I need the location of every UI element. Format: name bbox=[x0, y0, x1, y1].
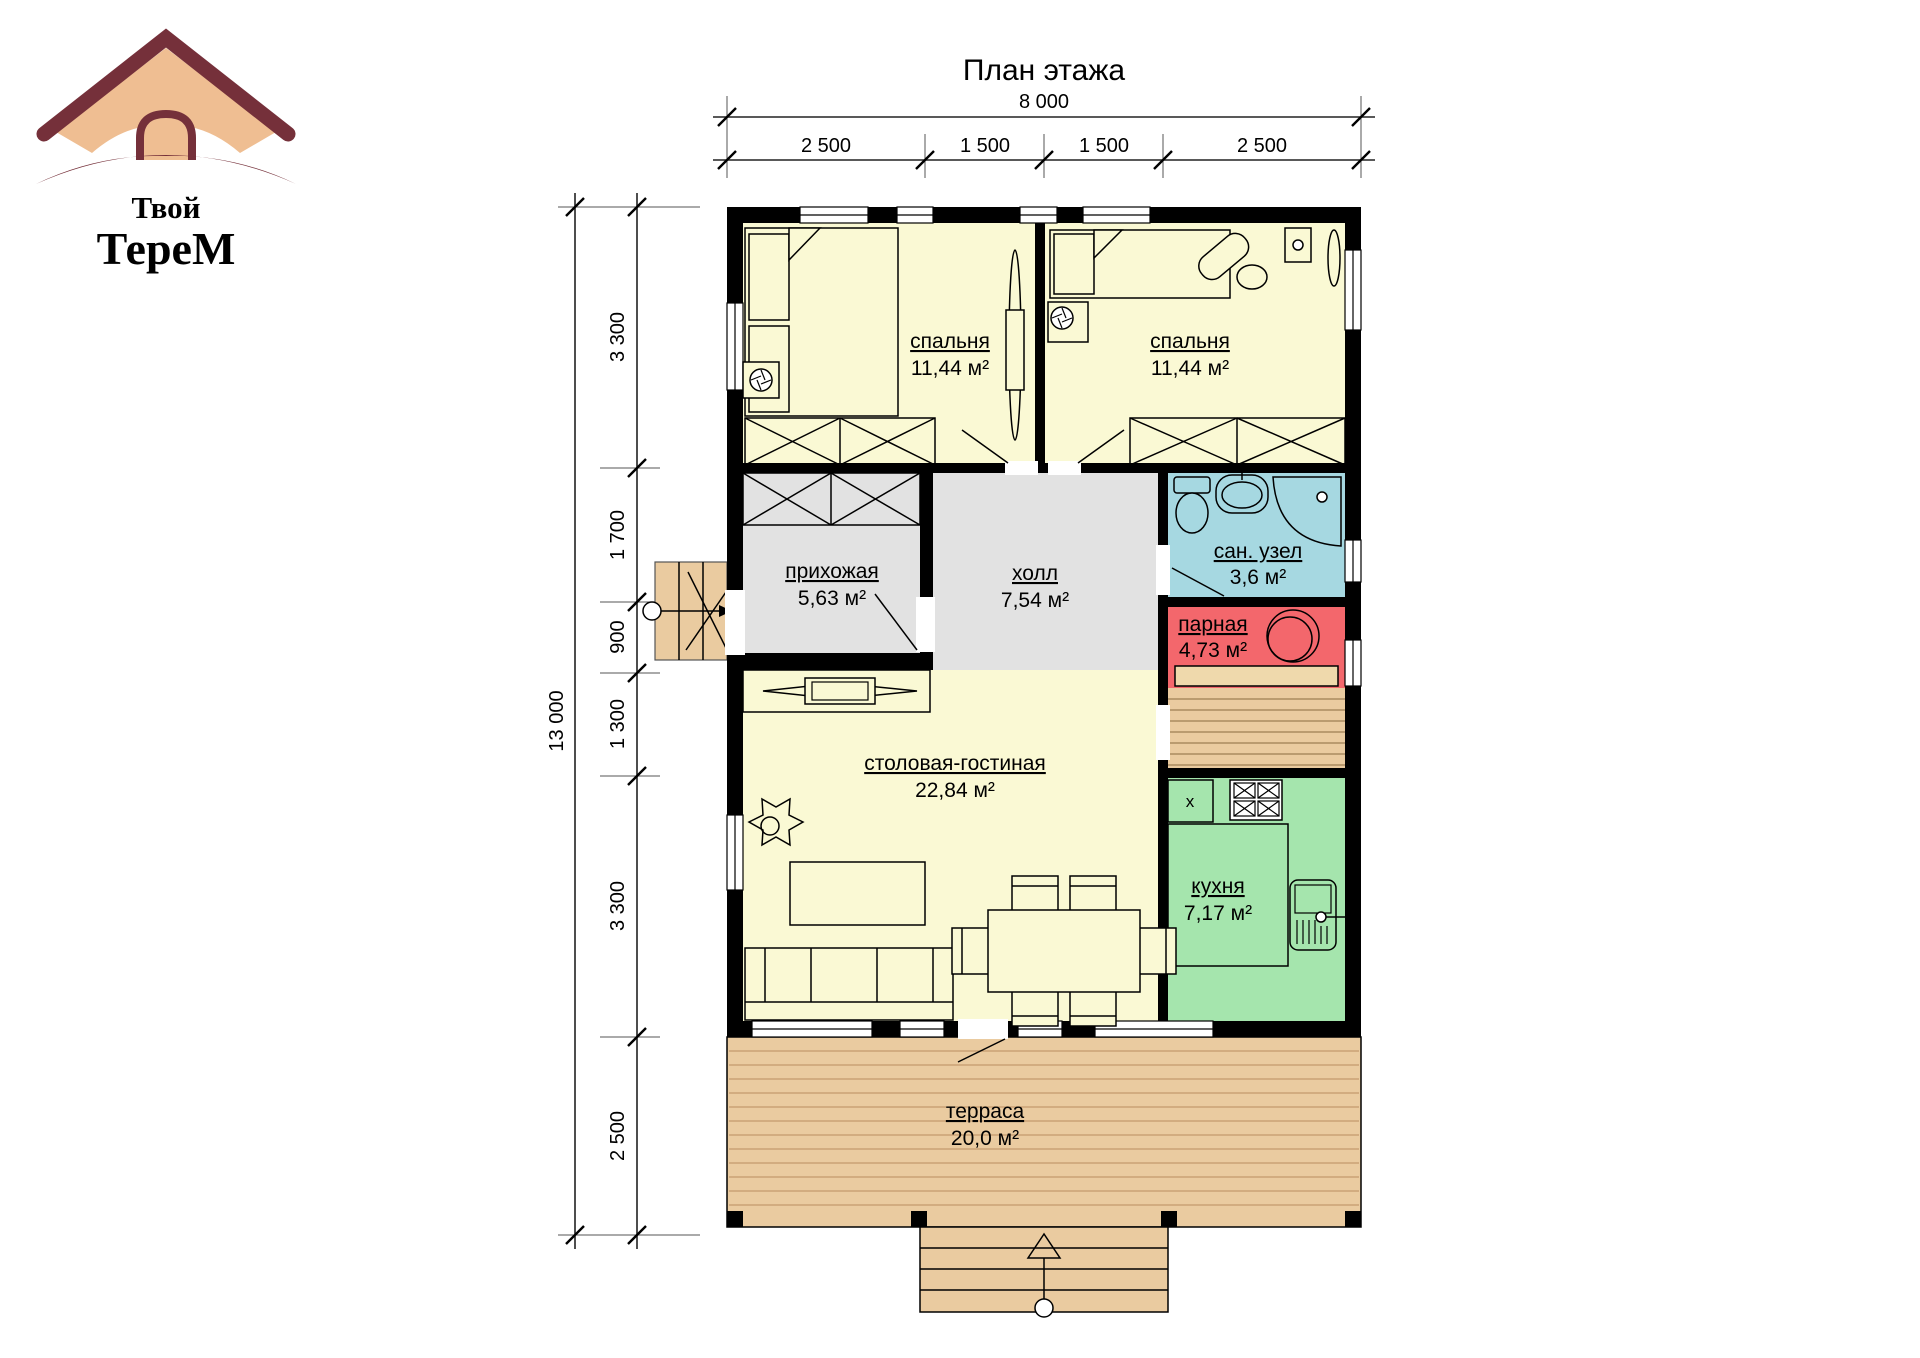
room-label-bathroom-area: 3,6 м² bbox=[1230, 566, 1286, 589]
room-label-terrace-name: терраса bbox=[946, 1100, 1025, 1123]
fan-icon bbox=[743, 362, 779, 398]
dim-vseg-5: 3 300 bbox=[607, 881, 629, 931]
terrace-steps-icon bbox=[920, 1227, 1168, 1317]
page-title: План этажа bbox=[963, 54, 1125, 87]
dim-seg-1: 2 500 bbox=[801, 135, 851, 157]
toilet-icon bbox=[1174, 477, 1210, 533]
fridge-mark: x bbox=[1186, 792, 1195, 811]
building: x bbox=[725, 207, 1361, 1062]
dim-seg-4: 2 500 bbox=[1237, 135, 1287, 157]
entrance-porch-icon bbox=[643, 562, 732, 660]
room-label-bedroom-left-name: спальня bbox=[910, 330, 990, 353]
coffee-table-icon bbox=[790, 862, 925, 925]
room-label-bedroom-right-name: спальня bbox=[1150, 330, 1230, 353]
room-label-entry-hall-area: 5,63 м² bbox=[798, 587, 866, 610]
house-roof-icon bbox=[44, 38, 288, 160]
logo-word2: ТереМ bbox=[97, 223, 236, 274]
logo-word1: Твой bbox=[131, 190, 200, 225]
dim-vseg-2: 1 700 bbox=[607, 510, 629, 560]
room-label-steam-room-area: 4,73 м² bbox=[1179, 639, 1247, 662]
floor-plan-page: Твой ТереМ План этажа 8 000 2 500 1 500 … bbox=[0, 0, 1920, 1358]
dimension-top: 8 000 2 500 1 500 1 500 2 500 bbox=[713, 91, 1375, 178]
room-label-bathroom-name: сан. узел bbox=[1214, 540, 1303, 563]
company-logo: Твой ТереМ bbox=[36, 38, 296, 274]
dim-seg-3: 1 500 bbox=[1079, 135, 1129, 157]
dim-total-height: 13 000 bbox=[546, 690, 568, 751]
steam-bench-icon bbox=[1175, 666, 1338, 686]
steam-room-deck bbox=[1168, 688, 1345, 768]
fan-icon bbox=[1048, 302, 1088, 342]
dim-vseg-1: 3 300 bbox=[607, 312, 629, 362]
room-label-kitchen-name: кухня bbox=[1191, 875, 1244, 898]
room-label-living-name: столовая-гостиная bbox=[864, 752, 1046, 775]
fridge-icon: x bbox=[1168, 780, 1213, 822]
dimension-left: 13 000 3 300 1 700 900 1 300 3 300 2 500 bbox=[546, 193, 700, 1249]
room-label-bedroom-left-area: 11,44 м² bbox=[911, 357, 989, 380]
dim-vseg-4: 1 300 bbox=[607, 699, 629, 749]
room-label-steam-room-name: парная bbox=[1178, 613, 1247, 636]
dim-vseg-6: 2 500 bbox=[607, 1111, 629, 1161]
room-terrace: терраса 20,0 м² bbox=[727, 1037, 1361, 1227]
room-label-kitchen-area: 7,17 м² bbox=[1184, 902, 1252, 925]
dim-seg-2: 1 500 bbox=[960, 135, 1010, 157]
room-label-hall-area: 7,54 м² bbox=[1001, 589, 1069, 612]
stove-icon bbox=[1230, 780, 1282, 820]
sofa-icon bbox=[745, 948, 953, 1020]
dim-vseg-3: 900 bbox=[607, 620, 629, 653]
kitchen-sink-icon bbox=[1290, 880, 1345, 950]
dim-total-width: 8 000 bbox=[1019, 91, 1069, 113]
room-label-living-area: 22,84 м² bbox=[915, 779, 995, 802]
room-label-bedroom-right-area: 11,44 м² bbox=[1151, 357, 1229, 380]
room-label-terrace-area: 20,0 м² bbox=[951, 1127, 1019, 1150]
room-label-hall-name: холл bbox=[1012, 562, 1058, 585]
room-label-entry-hall-name: прихожая bbox=[785, 560, 879, 583]
